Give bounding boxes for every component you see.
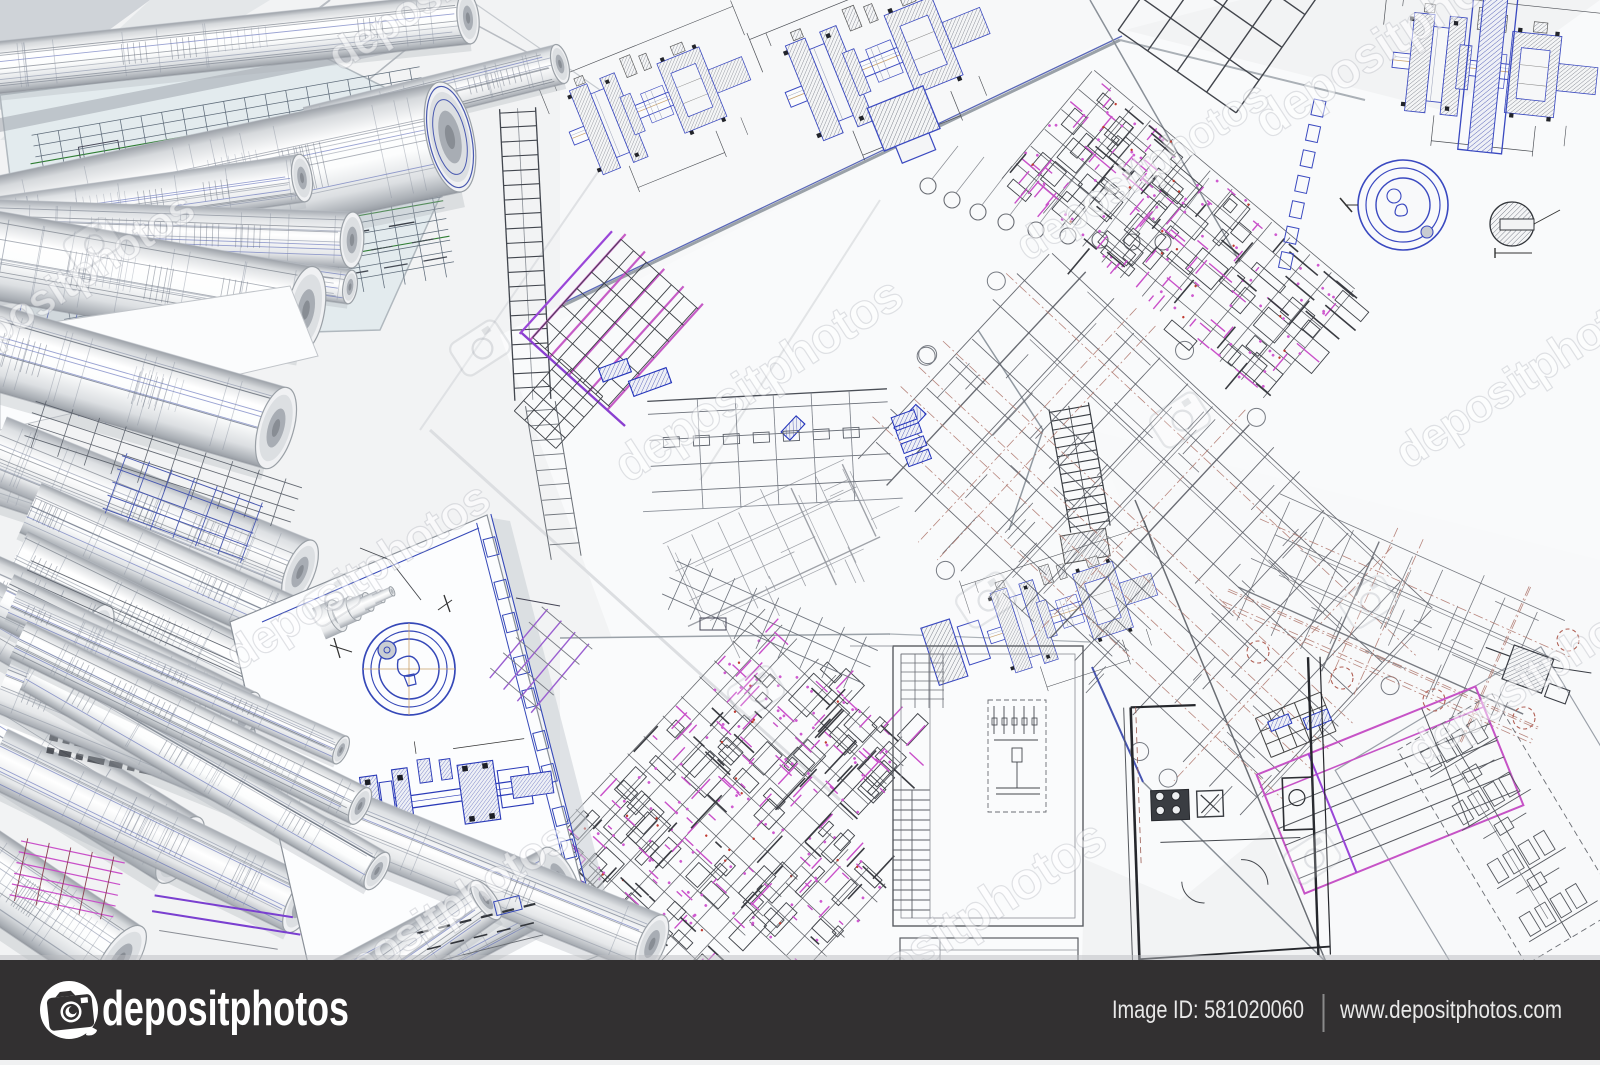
svg-text:depositphotos: depositphotos [102,982,349,1036]
svg-text:Image ID: 581020060: Image ID: 581020060 [1112,996,1304,1024]
svg-text:www.depositphotos.com: www.depositphotos.com [1339,996,1562,1024]
